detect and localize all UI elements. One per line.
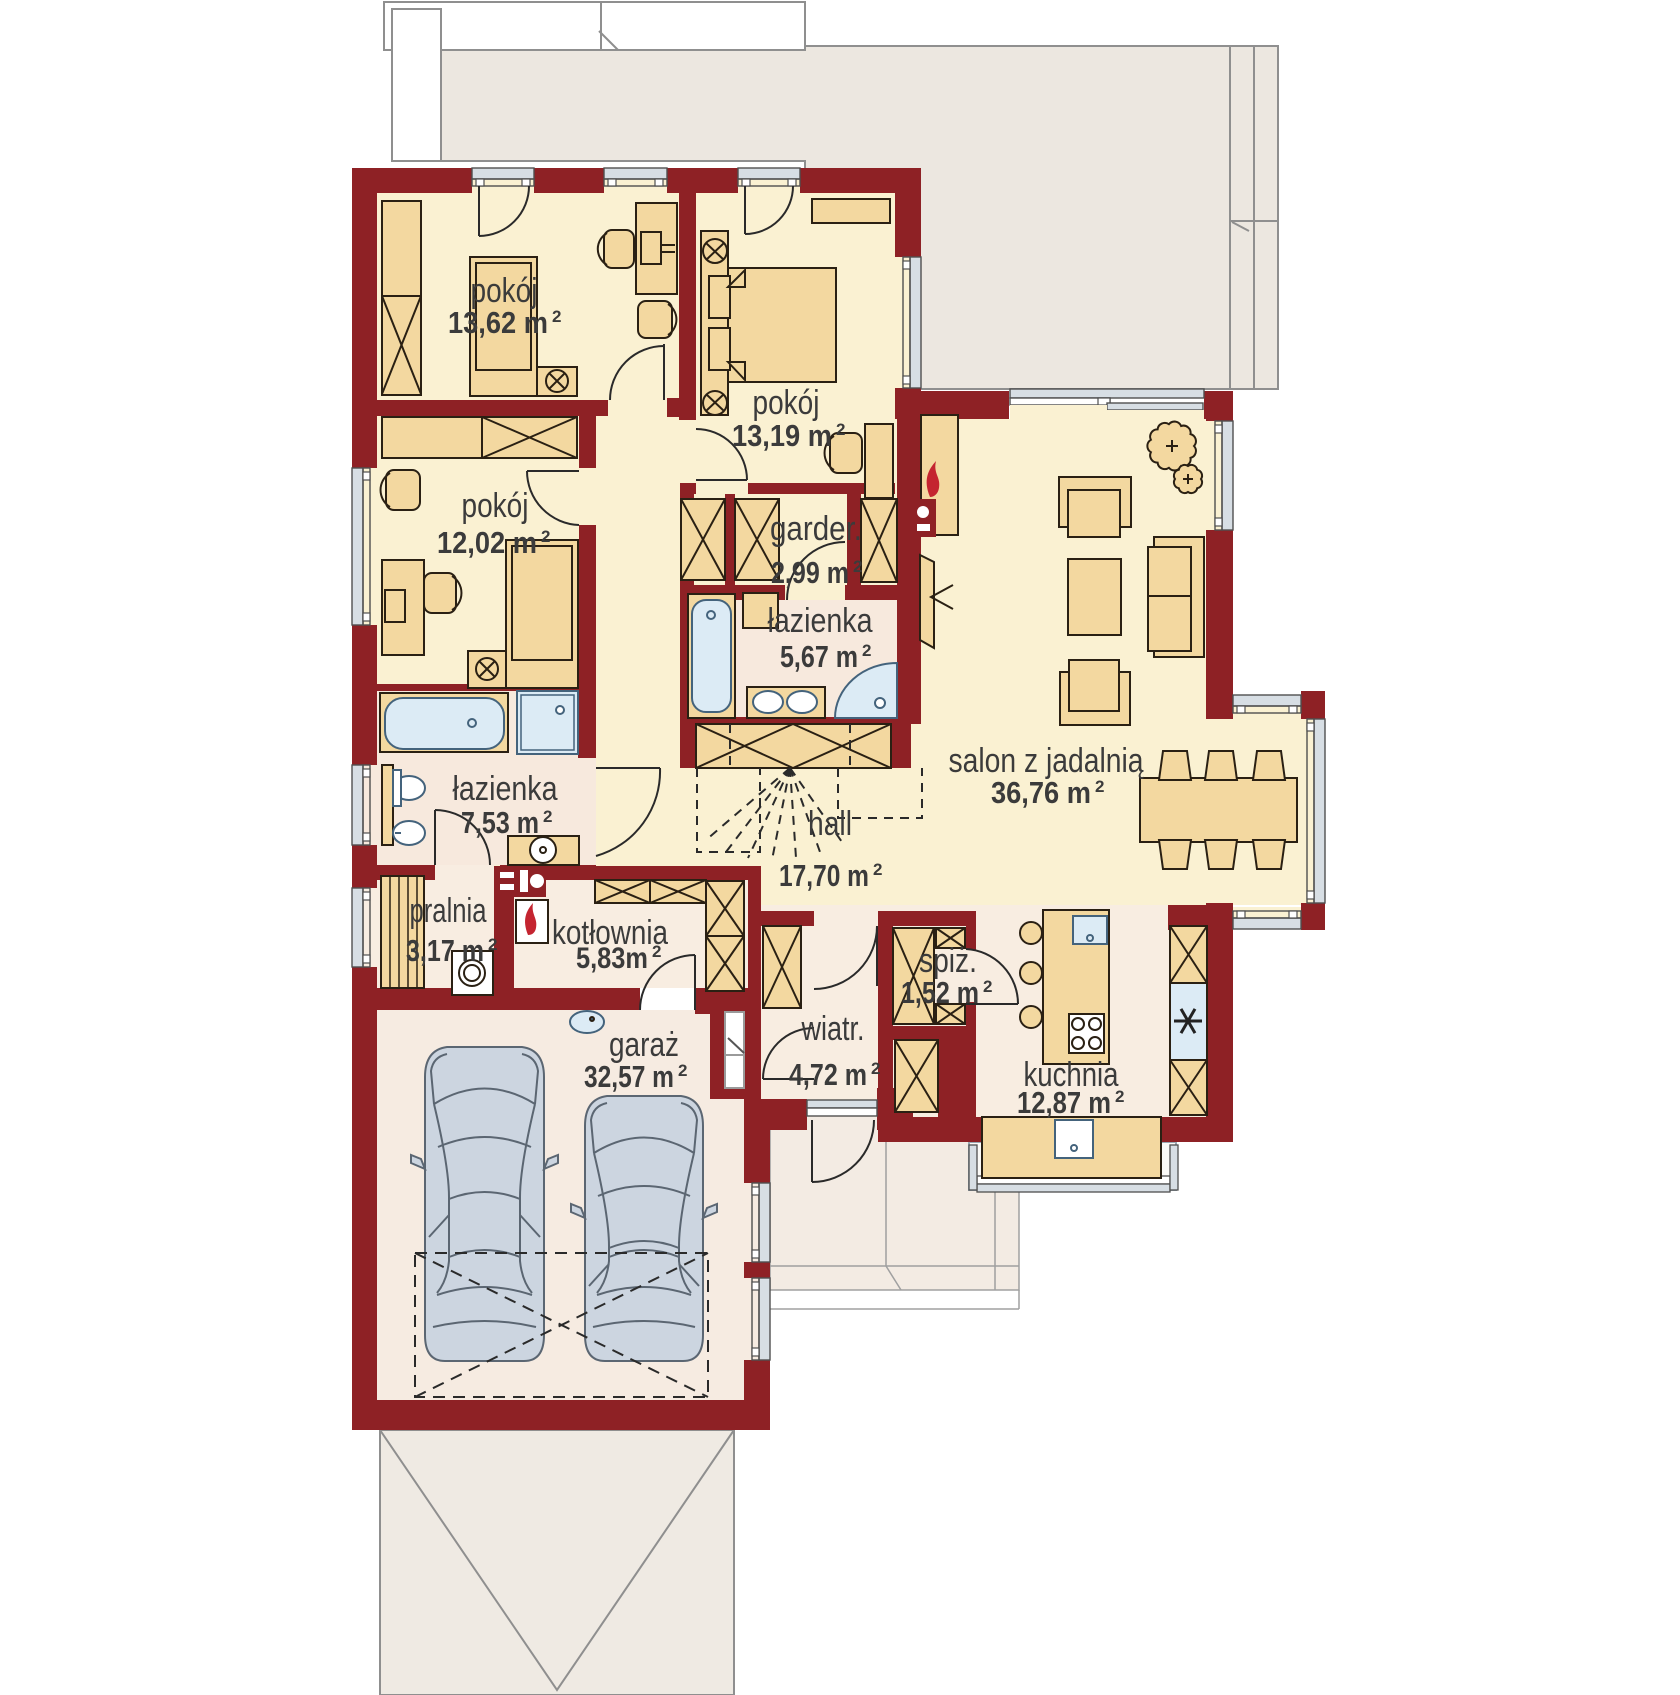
svg-text:2,99 m: 2,99 m xyxy=(771,555,849,590)
svg-text:2: 2 xyxy=(873,860,882,879)
svg-text:5,83m: 5,83m xyxy=(576,942,648,975)
svg-text:12,87 m: 12,87 m xyxy=(1017,1085,1111,1120)
svg-text:hall: hall xyxy=(808,805,852,843)
svg-text:13,19 m: 13,19 m xyxy=(732,418,832,453)
svg-text:1,52 m: 1,52 m xyxy=(901,975,979,1010)
svg-text:2: 2 xyxy=(543,807,552,826)
svg-text:pokój: pokój xyxy=(462,487,529,525)
svg-text:17,70 m: 17,70 m xyxy=(779,858,869,893)
svg-text:2: 2 xyxy=(871,1059,880,1078)
svg-text:2: 2 xyxy=(541,527,550,546)
svg-text:wiatr.: wiatr. xyxy=(801,1010,865,1048)
svg-text:2: 2 xyxy=(853,557,862,576)
svg-text:2: 2 xyxy=(1095,777,1104,796)
svg-text:36,76 m: 36,76 m xyxy=(991,775,1091,810)
svg-text:2: 2 xyxy=(488,935,497,954)
svg-text:4,72 m: 4,72 m xyxy=(789,1057,867,1092)
svg-text:7,53 m: 7,53 m xyxy=(461,805,539,840)
svg-text:13,62 m: 13,62 m xyxy=(448,305,548,340)
svg-text:2: 2 xyxy=(836,420,845,439)
svg-text:pralnia: pralnia xyxy=(410,892,487,930)
svg-text:pokój: pokój xyxy=(753,384,820,422)
svg-text:2: 2 xyxy=(983,977,992,996)
svg-text:5,67 m: 5,67 m xyxy=(780,639,858,674)
svg-text:32,57 m: 32,57 m xyxy=(584,1059,674,1094)
svg-text:3,17 m: 3,17 m xyxy=(406,933,484,968)
svg-text:garder.: garder. xyxy=(770,510,862,548)
svg-text:2: 2 xyxy=(552,307,561,326)
svg-text:2: 2 xyxy=(678,1061,687,1080)
svg-text:12,02 m: 12,02 m xyxy=(437,525,537,560)
svg-text:łazienka: łazienka xyxy=(453,770,558,808)
svg-text:2: 2 xyxy=(652,942,661,961)
svg-text:łazienka: łazienka xyxy=(768,602,873,640)
svg-text:2: 2 xyxy=(862,641,871,660)
svg-text:2: 2 xyxy=(1115,1087,1124,1106)
